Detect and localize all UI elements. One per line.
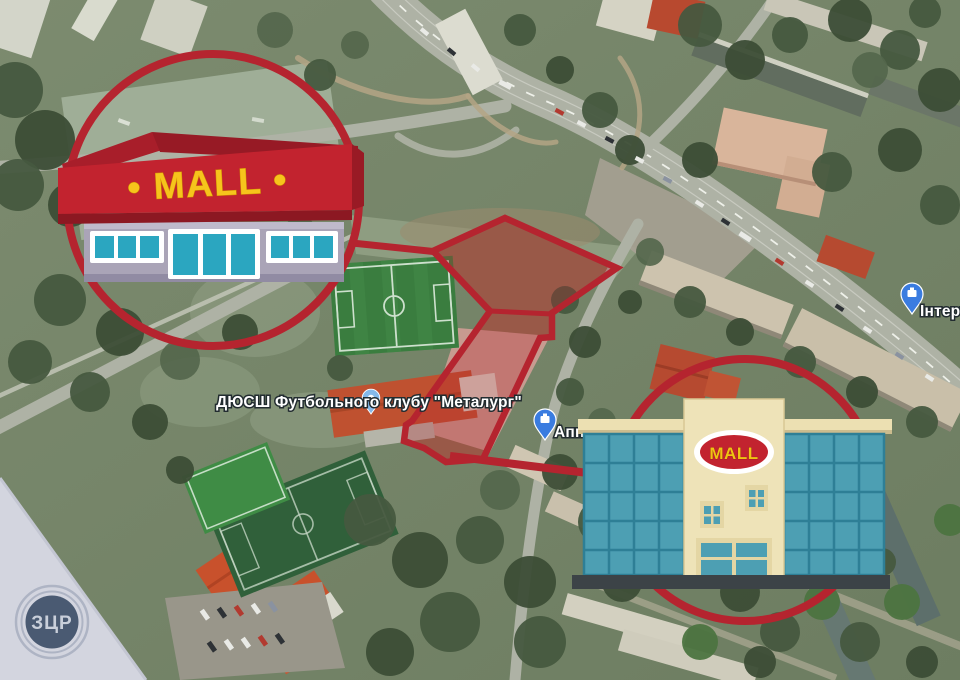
building-tower: MALL [684,399,784,577]
oval-sign-text: MALL [709,444,758,463]
zcr-logo-text: ЗЦР [31,613,72,634]
zcr-logo: ЗЦР [16,586,88,658]
building-base [572,575,890,589]
storefront-window-right [266,231,338,263]
plot-divider-line [490,311,552,314]
building-window-small-1 [745,485,768,511]
intert-label[interactable]: Інтерт [920,303,960,320]
building-window-small-2 [700,501,724,528]
football-field-upper [329,256,459,356]
promo-map-graphic: ДЮСШ Футбольного клубу "Металург" Аппа І… [0,0,960,680]
building-entrance [696,538,772,577]
satellite-map: ДЮСШ Футбольного клубу "Металург" Аппа І… [0,0,960,680]
mall-building-illustration: MALL [572,399,892,589]
building-glass-left [584,434,684,575]
building-glass-right [784,434,884,575]
club-label[interactable]: ДЮСШ Футбольного клубу "Металург" [216,394,522,411]
storefront-sign-text: • MALL • [126,159,288,208]
storefront-window-left [90,231,164,263]
storefront-door [168,229,260,279]
mall-storefront-illustration: • MALL • [58,132,364,282]
mall-oval-sign: MALL [694,430,774,474]
